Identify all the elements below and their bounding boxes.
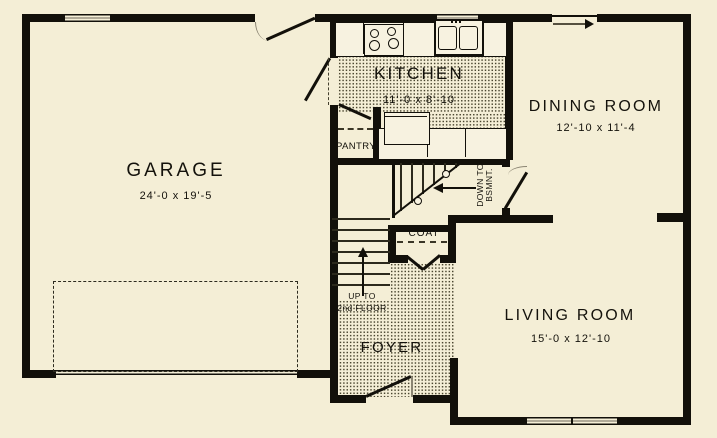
slider-arrow-head [585,19,594,29]
wall [512,14,552,22]
stair-up-label: 2nd FLOOR [331,304,393,313]
dining-slider-window [550,15,597,17]
room-label-garage: GARAGE [106,161,246,182]
stove-burner [370,29,379,38]
wall [617,417,691,425]
down-arrow-head [433,183,443,193]
closet-label-coat: COAT [400,228,448,239]
stair-up-label: UP TO [337,292,387,301]
foyer-floor [390,263,455,397]
room-dining [513,22,683,215]
room-label-pantry: PANTRY [333,142,379,152]
stair-down-label: DOWN TO BSMNT. [476,153,498,217]
floor-plan: GARAGE 24'-0 x 19'-5 KITCHEN 11'-0 x 8'-… [0,0,717,438]
dining-door-swing [508,166,527,175]
dishwasher-line [385,116,427,117]
stair-newel [414,197,422,205]
sink-faucet [459,21,461,23]
wall [450,358,458,425]
wall [657,213,683,222]
sink-faucet [451,21,453,23]
stair-tread [400,163,402,211]
stair-down-label-line2: BSMNT. [485,153,494,217]
wall [597,14,691,22]
garage-door-track [53,281,298,372]
sink-basin [459,26,478,50]
room-dims-dining: 12'-10 x 11'-4 [546,122,646,134]
wall [22,14,30,378]
stove-burner [387,27,396,36]
counter-divider [465,129,466,157]
wall [440,255,456,263]
wall [110,14,255,22]
room-label-living: LIVING ROOM [495,307,645,325]
stair-tread [411,163,413,203]
wall [448,215,553,223]
down-arrow-shaft [443,187,476,189]
wall [330,14,437,22]
room-dims-kitchen: 11'-0 x 8'-10 [369,94,469,106]
sink-basin [438,26,457,50]
room-dims-garage: 24'-0 x 19'-5 [116,190,236,202]
stair-tread [332,262,390,264]
up-arrow-head [358,247,368,257]
room-label-kitchen: KITCHEN [359,65,479,84]
stair-tread [332,218,390,220]
garage-entry-opening [328,58,329,105]
closet-shelf [397,241,447,243]
room-label-foyer: FOYER [357,340,427,357]
garage-window [65,14,110,22]
wall [22,370,56,378]
stove-burner [388,38,399,49]
window-mullion [571,417,573,425]
stair-newel [442,170,450,178]
wall [683,14,691,425]
room-label-dining: DINING ROOM [521,98,671,116]
stove-burner [369,40,380,51]
front-door-swing [411,377,413,397]
slider-arrow [553,23,586,25]
stair-wall [392,160,395,218]
sink-faucet [455,21,457,23]
stair-tread [332,284,390,286]
stair-tread [332,229,390,231]
stair-tread [332,240,390,242]
pantry-shelf [338,128,373,130]
kitchen-floor [428,113,505,128]
room-dims-living: 15'-0 x 12'-10 [521,333,621,345]
wall [450,417,527,425]
stair-tread [332,273,390,275]
up-arrow-shaft [362,256,364,296]
